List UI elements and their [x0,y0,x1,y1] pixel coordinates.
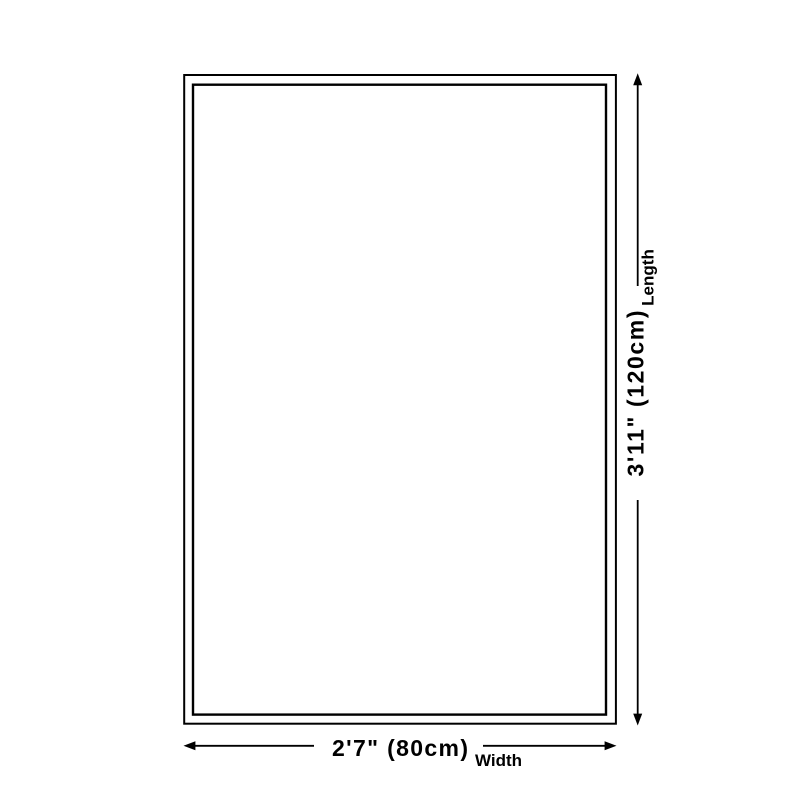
svg-text:Width: Width [475,751,522,770]
svg-text:3'11" (120cm): 3'11" (120cm) [623,311,649,477]
svg-text:2'7" (80cm): 2'7" (80cm) [332,735,468,761]
svg-text:Length: Length [638,249,657,306]
